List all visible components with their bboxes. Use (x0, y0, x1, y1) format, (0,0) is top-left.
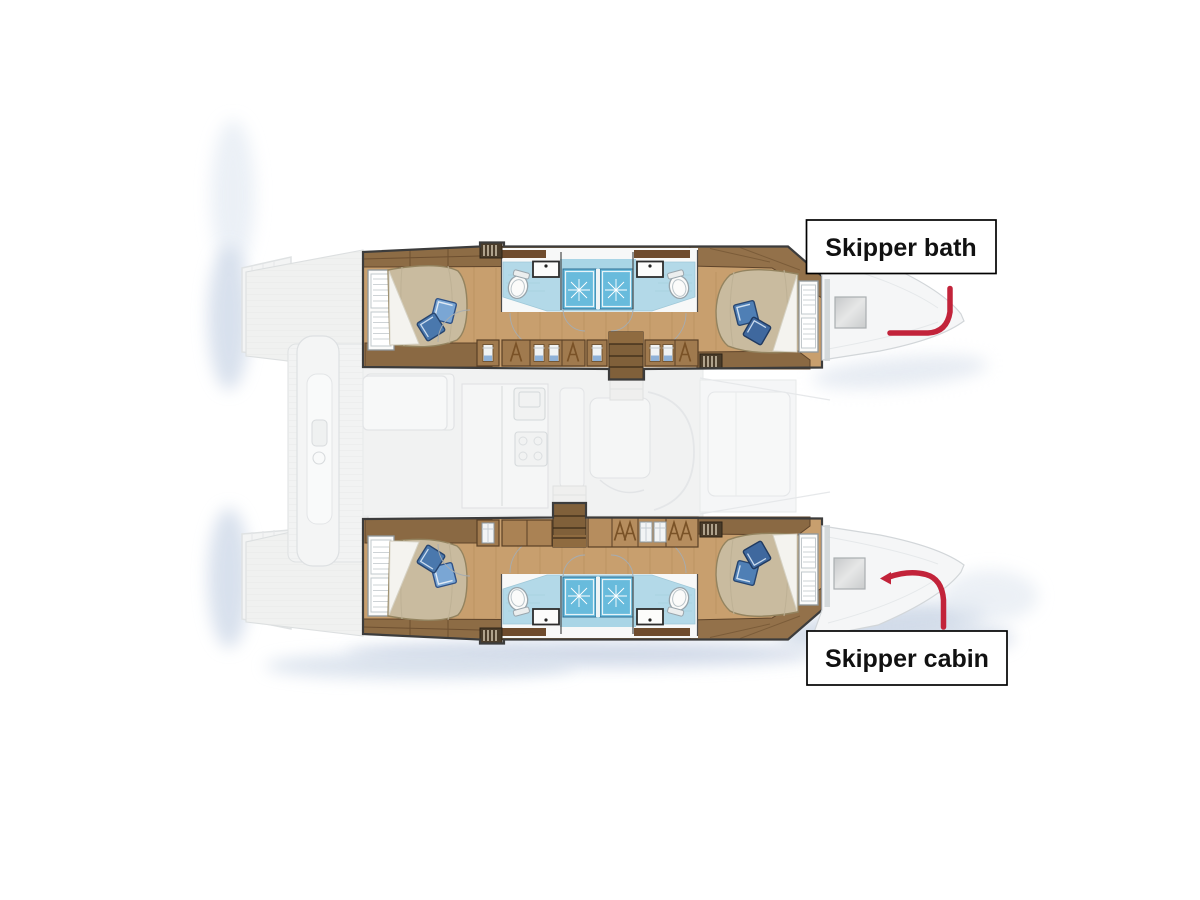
svg-text:Skipper bath: Skipper bath (825, 234, 976, 262)
svg-text:Skipper cabin: Skipper cabin (825, 645, 989, 673)
